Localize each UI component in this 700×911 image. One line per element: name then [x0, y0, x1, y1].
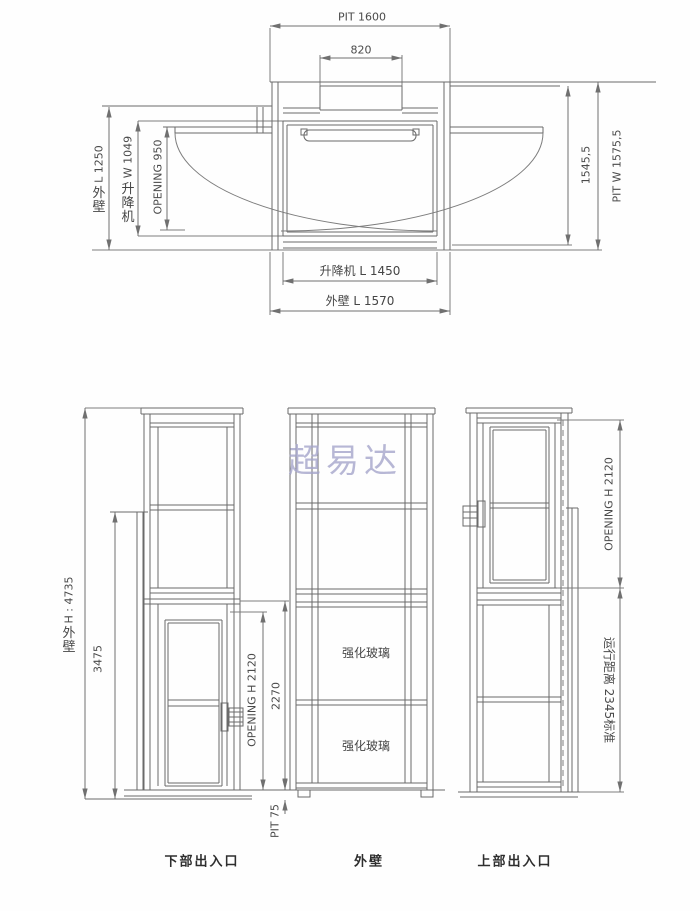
glass-label-lower: 强化玻璃 [342, 740, 390, 752]
lift-technical-drawing: PIT 1600 820 L 1250 外壁 W 1049 升降机 OPENIN… [0, 0, 700, 911]
watermark-text: 超易达 [288, 434, 402, 482]
dim-opening-width-label: OPENING 950 [153, 140, 164, 215]
base-foot-left [298, 790, 310, 797]
dim-outer-height-cjk-label: 外壁 [62, 627, 77, 655]
elevation-upper-entrance [458, 408, 624, 797]
caption-lower-entrance: 下部出入口 [164, 856, 239, 869]
dim-inner-width-label: 1545,5 [581, 146, 592, 185]
elevation-lower-entrance [85, 408, 289, 814]
dim-pit-length-label: PIT 1600 [338, 12, 386, 23]
dim-outer-wall-left-cjk-label: 外壁 [92, 187, 107, 215]
dim-lift-length-label: 升降机 L 1450 [320, 265, 401, 277]
dim-opening-height-lower-label: OPENING H 2120 [247, 653, 258, 747]
base-foot-right [421, 790, 433, 797]
caption-upper-entrance: 上部出入口 [477, 856, 552, 869]
dim-lift-width-cjk-label: 升降机 [121, 183, 136, 225]
dim-opening-height-upper-label: OPENING H 2120 [604, 457, 615, 551]
handrail [301, 129, 419, 141]
dim-outer-wall-length-label: 外壁 L 1570 [326, 295, 395, 307]
dim-outer-wall-left-num-label: L 1250 [94, 145, 105, 183]
caption-outer-wall: 外壁 [354, 856, 384, 869]
lower-entrance-dimensions [85, 408, 285, 814]
dim-pit-width-label: PIT W 1575,5 [612, 130, 623, 203]
dim-door-height-label: 2270 [271, 682, 282, 710]
dim-travel-distance-label: 运行距离 2345标准 [603, 637, 615, 743]
dim-box-width-label: 820 [351, 45, 372, 56]
door-swing-arcs [175, 133, 543, 231]
dim-mid-height-label: 3475 [93, 645, 104, 673]
dim-pit-depth-label: PIT 75 [270, 804, 281, 838]
door-handle-upper [463, 501, 485, 527]
glass-label-upper: 强化玻璃 [342, 647, 390, 659]
dim-lift-width-num-label: W 1049 [123, 136, 134, 178]
dim-outer-height-num-label: H : 4735 [64, 577, 75, 624]
